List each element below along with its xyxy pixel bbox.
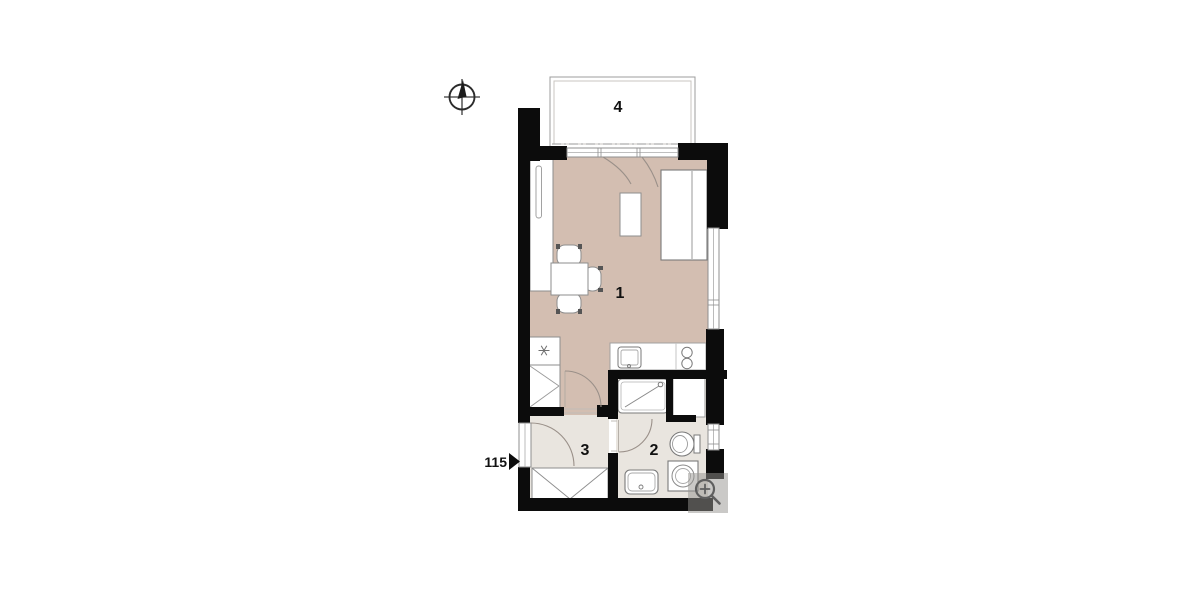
window-right-upper	[708, 228, 719, 329]
dining-table	[551, 263, 588, 295]
fridge-cabinet-column	[529, 337, 560, 408]
utility-closet	[673, 378, 705, 417]
room-label-1: 1	[616, 285, 625, 302]
window-right-lower	[708, 424, 719, 450]
room-label-3: 3	[581, 442, 590, 459]
floor-plan-drawing: 4 1 3 2 115	[0, 0, 1200, 600]
desk	[620, 193, 641, 236]
bed	[661, 170, 707, 260]
balcony-window	[567, 148, 678, 157]
toilet	[670, 432, 700, 456]
bathroom-sink	[625, 470, 658, 494]
wardrobe-left	[530, 158, 553, 291]
kitchen-counter	[610, 343, 706, 370]
board-item	[536, 166, 542, 218]
kitchen-sink	[618, 347, 641, 368]
room-label-4: 4	[614, 99, 623, 116]
zoom-in-button[interactable]	[688, 473, 728, 513]
entrance-door-frame	[519, 423, 531, 467]
chair-bottom	[556, 293, 582, 314]
unit-number-label: 115	[484, 454, 507, 470]
hallway-wardrobe	[532, 468, 608, 499]
unit-entrance-marker: 115	[484, 453, 520, 470]
shower	[618, 379, 668, 413]
balcony	[550, 77, 695, 148]
floor-plan-canvas: 4 1 3 2 115	[0, 0, 1200, 600]
north-compass-icon	[444, 79, 480, 115]
room-label-2: 2	[650, 442, 659, 459]
